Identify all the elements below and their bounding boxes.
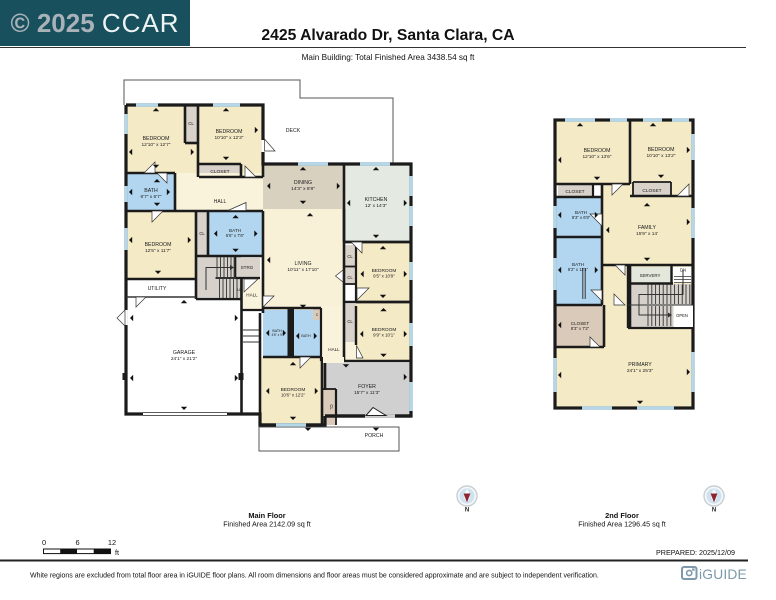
svg-text:CL: CL xyxy=(199,231,205,236)
svg-text:CLOSET: CLOSET xyxy=(642,188,661,194)
svg-text:White regions are excluded fro: White regions are excluded from total fl… xyxy=(30,573,599,580)
svg-text:6: 6 xyxy=(75,538,79,547)
svg-text:8'2" x 11'1": 8'2" x 11'1" xyxy=(568,267,589,272)
svg-text:10'10" x 13'2": 10'10" x 13'2" xyxy=(647,153,676,159)
svg-text:Finished Area 1296.45 sq ft: Finished Area 1296.45 sq ft xyxy=(578,520,666,529)
svg-text:KITCHEN: KITCHEN xyxy=(365,197,388,203)
svg-text:STRG: STRG xyxy=(241,265,254,270)
svg-text:DINING: DINING xyxy=(294,180,312,186)
svg-text:10'6" x 12'2": 10'6" x 12'2" xyxy=(281,392,306,397)
svg-text:BEDROOM: BEDROOM xyxy=(143,136,170,142)
svg-text:PRIMARY: PRIMARY xyxy=(628,362,652,368)
svg-text:10'11" x 17'10": 10'11" x 17'10" xyxy=(287,267,319,273)
svg-text:4'6" x 9': 4'6" x 9' xyxy=(271,333,282,337)
svg-text:UTILITY: UTILITY xyxy=(148,286,167,292)
svg-text:UP: UP xyxy=(237,288,243,292)
svg-text:5'6" x 7'6": 5'6" x 7'6" xyxy=(226,233,245,238)
svg-text:HALL: HALL xyxy=(246,293,258,298)
svg-text:HALL: HALL xyxy=(214,199,227,205)
svg-text:N: N xyxy=(465,508,469,514)
svg-text:CLOSET: CLOSET xyxy=(210,169,229,175)
svg-text:12'10" x 12'7": 12'10" x 12'7" xyxy=(142,142,171,148)
svg-text:10'10" x 12'3": 10'10" x 12'3" xyxy=(215,135,244,141)
svg-text:GARAGE: GARAGE xyxy=(173,350,196,356)
svg-text:12'5" x 11'7": 12'5" x 11'7" xyxy=(145,248,171,254)
svg-text:8'3" x 7'2": 8'3" x 7'2" xyxy=(571,326,590,331)
svg-text:FOYER: FOYER xyxy=(358,384,376,390)
svg-text:OPEN: OPEN xyxy=(676,313,688,318)
svg-text:N: N xyxy=(712,508,716,514)
svg-text:LIVING: LIVING xyxy=(294,261,311,267)
svg-text:8'3" x 6'9": 8'3" x 6'9" xyxy=(572,215,591,220)
svg-text:DN: DN xyxy=(680,268,686,273)
svg-text:15'9" x 14': 15'9" x 14' xyxy=(636,231,658,237)
svg-text:CL: CL xyxy=(329,404,334,410)
svg-text:BEDROOM: BEDROOM xyxy=(145,242,172,248)
svg-text:Finished Area 2142.09 sq ft: Finished Area 2142.09 sq ft xyxy=(223,520,311,529)
svg-text:24'1" x 21'2": 24'1" x 21'2" xyxy=(171,356,198,362)
svg-text:9'9" x 10'1": 9'9" x 10'1" xyxy=(373,332,395,337)
svg-text:BEDROOM: BEDROOM xyxy=(584,148,611,154)
svg-text:BATH: BATH xyxy=(301,334,311,338)
svg-text:0: 0 xyxy=(42,538,46,547)
svg-text:ft: ft xyxy=(115,548,119,557)
svg-text:14'3" x 8'8": 14'3" x 8'8" xyxy=(291,186,315,192)
svg-text:HALL: HALL xyxy=(328,347,340,352)
svg-text:PORCH: PORCH xyxy=(365,433,384,439)
svg-text:CLOSET: CLOSET xyxy=(565,189,584,195)
svg-text:PREPARED: 2025/12/09: PREPARED: 2025/12/09 xyxy=(656,548,735,557)
svg-text:15'7" x 11'3": 15'7" x 11'3" xyxy=(354,390,380,396)
svg-text:FAMILY: FAMILY xyxy=(638,225,657,231)
svg-text:iGUIDE: iGUIDE xyxy=(699,567,747,582)
svg-text:12' x 14'3": 12' x 14'3" xyxy=(365,203,387,209)
svg-text:CL: CL xyxy=(347,275,353,280)
svg-text:BEDROOM: BEDROOM xyxy=(648,147,675,153)
svg-text:CL: CL xyxy=(188,121,194,126)
svg-text:BEDROOM: BEDROOM xyxy=(216,129,243,135)
svg-text:CL: CL xyxy=(347,254,353,259)
svg-text:DECK: DECK xyxy=(286,128,301,134)
svg-text:SERVERY: SERVERY xyxy=(640,273,661,278)
svg-text:9'5" x 10'9": 9'5" x 10'9" xyxy=(373,273,395,278)
svg-text:BATH: BATH xyxy=(144,188,158,194)
svg-text:CL: CL xyxy=(347,319,353,324)
svg-text:12: 12 xyxy=(108,538,116,547)
svg-text:24'1" x 25'3": 24'1" x 25'3" xyxy=(627,368,654,374)
svg-text:6'7" x 6'7": 6'7" x 6'7" xyxy=(141,194,162,200)
svg-text:C: C xyxy=(316,313,319,317)
svg-text:12'10" x 13'6": 12'10" x 13'6" xyxy=(583,154,612,160)
